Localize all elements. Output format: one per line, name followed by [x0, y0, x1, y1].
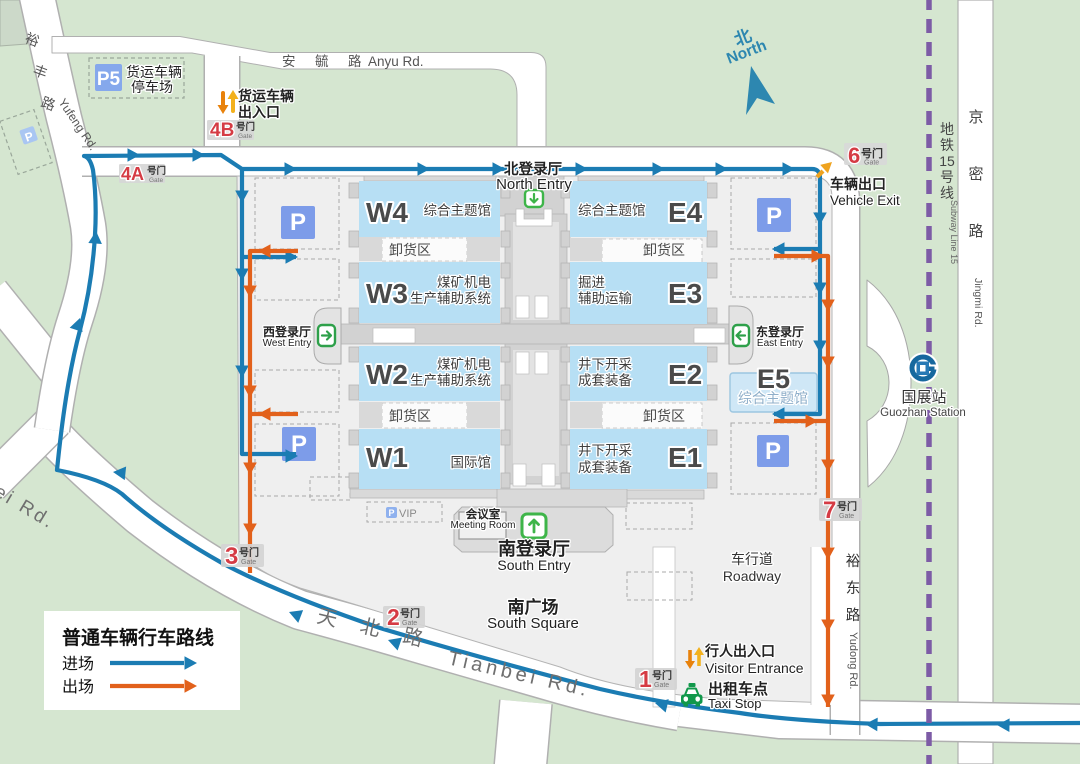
- svg-text:Visitor Entrance: Visitor Entrance: [705, 660, 804, 676]
- svg-text:路: 路: [968, 223, 983, 240]
- svg-text:井下开采: 井下开采: [578, 357, 632, 372]
- svg-text:东登录厅: 东登录厅: [756, 324, 804, 339]
- svg-text:Guozhan Station: Guozhan Station: [880, 407, 966, 419]
- svg-text:South Square: South Square: [487, 615, 579, 632]
- svg-text:成套装备: 成套装备: [578, 459, 632, 475]
- svg-text:W2: W2: [366, 359, 408, 390]
- svg-text:地: 地: [940, 121, 954, 137]
- svg-text:卸货区: 卸货区: [389, 408, 431, 424]
- svg-text:生产辅助系统: 生产辅助系统: [410, 373, 491, 388]
- svg-text:煤矿机电: 煤矿机电: [437, 357, 491, 372]
- svg-text:3: 3: [225, 543, 238, 570]
- svg-text:Gate: Gate: [654, 682, 669, 689]
- svg-text:North Entry: North Entry: [496, 176, 572, 193]
- svg-text:井下开采: 井下开采: [578, 443, 632, 458]
- svg-text:Taxi Stop: Taxi Stop: [708, 696, 761, 711]
- svg-text:会议室: 会议室: [465, 507, 501, 521]
- svg-text:Yudong Rd.: Yudong Rd.: [847, 632, 859, 690]
- svg-text:E3: E3: [668, 278, 702, 309]
- svg-text:西登录厅: 西登录厅: [263, 324, 311, 339]
- svg-text:卸货区: 卸货区: [389, 242, 431, 258]
- svg-text:货运车辆: 货运车辆: [237, 88, 294, 104]
- svg-text:成套装备: 成套装备: [578, 372, 632, 388]
- svg-text:P: P: [765, 438, 781, 465]
- svg-text:铁: 铁: [940, 137, 954, 153]
- svg-text:普通车辆行车路线: 普通车辆行车路线: [62, 626, 214, 649]
- svg-text:密: 密: [968, 166, 983, 183]
- svg-text:号门: 号门: [236, 121, 255, 133]
- svg-text:East Entry: East Entry: [757, 338, 803, 349]
- svg-text:货运车辆: 货运车辆: [126, 64, 182, 80]
- svg-text:卸货区: 卸货区: [643, 408, 685, 424]
- svg-text:Gate: Gate: [241, 559, 256, 566]
- svg-text:P: P: [291, 431, 307, 458]
- svg-text:W3: W3: [366, 278, 408, 309]
- svg-text:E1: E1: [668, 442, 702, 473]
- svg-text:P: P: [290, 209, 306, 236]
- svg-text:车行道: 车行道: [731, 551, 773, 567]
- svg-text:南广场: 南广场: [508, 597, 559, 617]
- svg-text:出入口: 出入口: [238, 104, 280, 120]
- svg-text:裕: 裕: [846, 553, 861, 570]
- svg-text:Gate: Gate: [864, 160, 879, 167]
- svg-text:West Entry: West Entry: [263, 338, 312, 349]
- svg-text:6: 6: [848, 143, 860, 168]
- svg-text:号门: 号门: [239, 546, 259, 559]
- svg-text:Anyu Rd.: Anyu Rd.: [368, 54, 424, 69]
- svg-text:Vehicle Exit: Vehicle Exit: [830, 193, 900, 208]
- svg-text:W4: W4: [366, 197, 408, 228]
- svg-text:P5: P5: [97, 69, 121, 90]
- svg-text:号门: 号门: [837, 500, 857, 513]
- svg-text:4B: 4B: [210, 120, 234, 141]
- svg-text:Gate: Gate: [839, 513, 854, 520]
- svg-text:Subway Line 15: Subway Line 15: [949, 200, 959, 264]
- svg-text:号门: 号门: [861, 146, 883, 160]
- svg-text:生产辅助系统: 生产辅助系统: [410, 291, 491, 306]
- svg-text:7: 7: [823, 497, 836, 524]
- svg-text:路: 路: [846, 607, 861, 624]
- svg-text:京: 京: [968, 109, 983, 126]
- svg-text:Gate: Gate: [149, 177, 163, 184]
- svg-text:煤矿机电: 煤矿机电: [437, 275, 491, 290]
- svg-text:15: 15: [939, 153, 955, 169]
- svg-text:东: 东: [846, 580, 861, 597]
- svg-text:1: 1: [639, 666, 652, 692]
- svg-text:号门: 号门: [400, 607, 420, 620]
- svg-text:Roadway: Roadway: [723, 568, 781, 584]
- svg-text:E2: E2: [668, 359, 702, 390]
- svg-text:VIP: VIP: [399, 508, 417, 520]
- svg-text:线: 线: [940, 185, 954, 201]
- svg-text:号: 号: [940, 169, 954, 185]
- svg-text:毓: 毓: [315, 54, 329, 69]
- svg-text:Gate: Gate: [238, 133, 252, 140]
- svg-text:掘进: 掘进: [578, 275, 606, 290]
- svg-text:Meeting Room: Meeting Room: [450, 520, 515, 531]
- svg-text:综合主题馆: 综合主题馆: [424, 203, 492, 218]
- svg-text:号门: 号门: [652, 669, 672, 682]
- svg-text:行人出入口: 行人出入口: [704, 643, 775, 659]
- svg-text:南登录厅: 南登录厅: [498, 538, 570, 559]
- svg-text:South Entry: South Entry: [497, 557, 570, 573]
- svg-text:P: P: [388, 508, 394, 518]
- svg-text:进场: 进场: [62, 655, 94, 673]
- svg-text:综合主题馆: 综合主题馆: [578, 203, 646, 218]
- svg-text:车辆出口: 车辆出口: [830, 176, 886, 192]
- svg-text:安: 安: [282, 54, 296, 69]
- svg-text:综合主题馆: 综合主题馆: [738, 390, 808, 406]
- svg-text:出场: 出场: [62, 678, 94, 696]
- svg-text:路: 路: [348, 54, 362, 69]
- svg-text:国展站: 国展站: [901, 389, 946, 406]
- svg-text:4A: 4A: [121, 164, 144, 184]
- svg-text:W1: W1: [366, 442, 408, 473]
- svg-text:E4: E4: [668, 197, 703, 228]
- svg-text:国际馆: 国际馆: [451, 455, 492, 470]
- svg-text:Jingmi Rd.: Jingmi Rd.: [972, 278, 984, 328]
- svg-text:P: P: [766, 203, 782, 230]
- svg-text:卸货区: 卸货区: [643, 242, 685, 258]
- svg-text:号门: 号门: [147, 165, 166, 177]
- svg-text:辅助运输: 辅助运输: [578, 291, 632, 306]
- svg-text:停车场: 停车场: [131, 79, 173, 95]
